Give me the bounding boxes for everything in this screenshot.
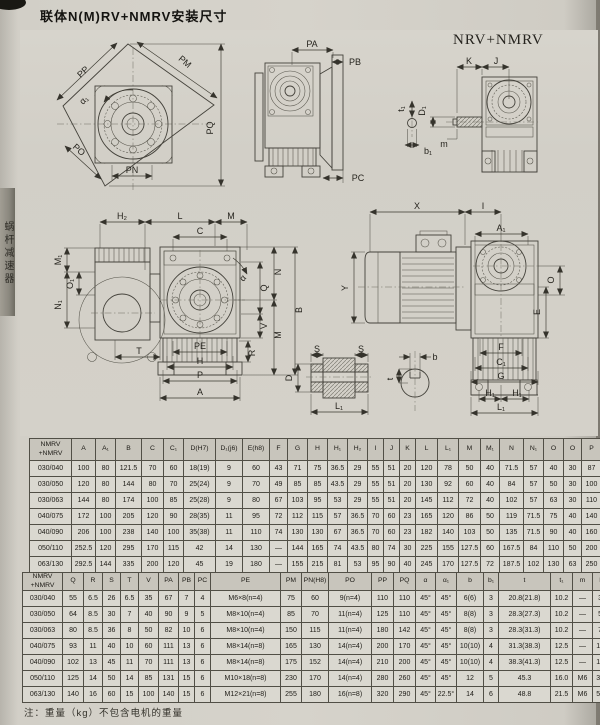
table-row: 040/0759311401060111136M8×14(n=8)1651301…	[23, 639, 600, 655]
column-header: PC	[195, 573, 211, 591]
value-cell: 80	[63, 623, 84, 639]
value-cell: 80	[142, 477, 164, 493]
value-cell: 14	[216, 541, 243, 557]
dim-label-pc: PC	[352, 173, 365, 183]
value-cell: 165	[281, 639, 302, 655]
value-cell: 8.5	[84, 607, 103, 623]
value-cell: 6	[195, 639, 211, 655]
value-cell: 25(24)	[184, 477, 216, 493]
row-label: 030/040	[30, 461, 72, 477]
input-flange-drawing: PP PM PQ PN PO α₁	[55, 40, 245, 195]
table-row: 040/09010213451170111136M8×14(n=8)175152…	[23, 655, 600, 671]
value-cell: 100	[139, 687, 159, 703]
value-cell: 206	[72, 525, 96, 541]
value-cell: 335	[116, 557, 142, 573]
column-header: R	[84, 573, 103, 591]
value-cell: 12.5	[551, 655, 573, 671]
value-cell: 85	[288, 477, 308, 493]
value-cell: 119	[500, 509, 524, 525]
value-cell: 120	[164, 557, 184, 573]
dim-label-a: A	[197, 387, 203, 397]
value-cell: 55	[368, 493, 384, 509]
value-cell: 155	[288, 557, 308, 573]
value-cell: 23	[400, 509, 416, 525]
value-cell: 6(6)	[457, 591, 484, 607]
value-cell: 112	[288, 509, 308, 525]
value-cell: 14	[457, 687, 484, 703]
value-cell: 13	[179, 639, 195, 655]
page-title: 联体N(M)RV+NMRV安装尺寸	[40, 6, 227, 25]
value-cell: 30	[564, 493, 582, 509]
value-cell: 43.5	[328, 477, 348, 493]
row-label: 050/110	[30, 541, 72, 557]
value-cell: 9	[216, 477, 243, 493]
value-cell: 16	[84, 687, 103, 703]
value-cell: 71	[288, 461, 308, 477]
value-cell: 121.5	[116, 461, 142, 477]
value-cell: 42	[184, 541, 216, 557]
value-cell: 15	[179, 687, 195, 703]
value-cell: 100	[96, 525, 116, 541]
value-cell: M8×14(n=8)	[211, 655, 281, 671]
value-cell: 205	[116, 509, 142, 525]
row-label: 030/050	[30, 477, 72, 493]
value-cell: 10.2	[551, 607, 573, 623]
value-cell: 4	[484, 639, 499, 655]
value-cell: 14(n=4)	[329, 671, 372, 687]
value-cell: 215	[308, 557, 328, 573]
dim-label-n1: N₁	[53, 300, 63, 310]
dim-label-h2: H₂	[117, 211, 127, 221]
value-cell: 85	[139, 671, 159, 687]
value-cell: 140	[63, 687, 84, 703]
dim-label-c1: C₁	[496, 357, 506, 367]
column-header: C	[142, 439, 164, 461]
value-cell: 102	[500, 493, 524, 509]
value-cell: 6.5	[84, 591, 103, 607]
value-cell: 120	[142, 509, 164, 525]
column-header: J	[384, 439, 400, 461]
dim-label-alpha: α	[237, 273, 248, 283]
value-cell: 180	[372, 623, 394, 639]
column-header: PA	[159, 573, 179, 591]
dim-label-l1-shaft: L₁	[335, 401, 343, 411]
column-header: K	[400, 439, 416, 461]
dim-label-l1: L₁	[497, 402, 505, 412]
value-cell: 115	[302, 623, 329, 639]
value-cell: 14	[84, 671, 103, 687]
value-cell: 45°	[416, 623, 436, 639]
value-cell: 60	[243, 461, 270, 477]
column-header: PE	[211, 573, 281, 591]
column-header: A₁	[96, 439, 116, 461]
value-cell: 10.2	[551, 591, 573, 607]
value-cell: 102	[524, 557, 544, 573]
value-cell: 40	[139, 607, 159, 623]
table-row: 050/110252.51202951701154214130—14416574…	[30, 541, 600, 557]
column-header: O	[544, 439, 564, 461]
value-cell: 200	[372, 639, 394, 655]
value-cell: 57	[328, 509, 348, 525]
row-label: 040/075	[30, 509, 72, 525]
table-row: 030/04010080121.5706018(19)96043717536.5…	[30, 461, 600, 477]
value-cell: 12.0	[593, 639, 600, 655]
value-cell: 43.5	[348, 541, 368, 557]
value-cell: 14(n=4)	[329, 639, 372, 655]
column-header: PN(H8)	[302, 573, 329, 591]
value-cell: 15	[179, 671, 195, 687]
column-header: H	[308, 439, 328, 461]
dim-label-r: R	[247, 349, 257, 356]
row-label: 063/130	[23, 687, 63, 703]
table-row: 030/05012080144807025(24)97049858543.529…	[30, 477, 600, 493]
value-cell: 6	[195, 671, 211, 687]
value-cell: 9(n=4)	[329, 591, 372, 607]
value-cell: 170	[142, 541, 164, 557]
value-cell: 70	[368, 509, 384, 525]
value-cell: 290	[394, 687, 416, 703]
dim-label-n: N	[273, 269, 283, 276]
table-row: 030/063808.53685082106M8×10(n=4)15011511…	[23, 623, 600, 639]
value-cell: 23	[400, 525, 416, 541]
value-cell: 14(n=4)	[329, 655, 372, 671]
value-cell: 57	[524, 461, 544, 477]
value-cell: 103	[288, 493, 308, 509]
value-cell: 125	[372, 607, 394, 623]
value-cell: 160	[582, 525, 600, 541]
table-row: 050/11012514501485131156M10×18(n=8)23017…	[23, 671, 600, 687]
value-cell: 78	[438, 461, 459, 477]
column-header: Q	[63, 573, 84, 591]
value-cell: 135	[500, 525, 524, 541]
value-cell: —	[573, 639, 593, 655]
value-cell: 260	[394, 671, 416, 687]
value-cell: 14	[121, 671, 139, 687]
motor-assembly-drawing: X I A₁	[340, 200, 598, 436]
value-cell: 110	[394, 591, 416, 607]
value-cell: —	[573, 623, 593, 639]
dim-label-h1-right: H₁	[512, 388, 522, 398]
dim-label-k: K	[466, 56, 472, 66]
value-cell: 7	[179, 591, 195, 607]
value-cell: 40	[481, 493, 500, 509]
value-cell: 49	[270, 477, 288, 493]
value-cell: 80	[96, 493, 116, 509]
value-cell: 67	[270, 493, 288, 509]
column-header: L	[416, 439, 438, 461]
column-header: α	[416, 573, 436, 591]
value-cell: 90	[159, 607, 179, 623]
column-header: D(H7)	[184, 439, 216, 461]
value-cell: 11(n=4)	[329, 607, 372, 623]
value-cell: 84	[500, 477, 524, 493]
column-header: NMRV +NMRV	[23, 573, 63, 591]
column-header: P	[582, 439, 600, 461]
value-cell: 7	[121, 607, 139, 623]
value-cell: 180	[302, 687, 329, 703]
dim-label-pp: PP	[75, 64, 91, 80]
value-cell: 152	[302, 655, 329, 671]
value-cell: 36.5	[328, 461, 348, 477]
value-cell: M6	[573, 687, 593, 703]
value-cell: 150	[281, 623, 302, 639]
value-cell: 50	[481, 525, 500, 541]
dim-label-p: P	[197, 370, 203, 380]
value-cell: 19	[216, 557, 243, 573]
row-label: 030/050	[23, 607, 63, 623]
value-cell: 145	[416, 493, 438, 509]
value-cell: 144	[116, 477, 142, 493]
value-cell: 40	[564, 509, 582, 525]
value-cell: 100	[72, 461, 96, 477]
table-row: 040/09020610023814010035(38)111107413013…	[30, 525, 600, 541]
value-cell: 127.5	[459, 541, 481, 557]
column-header: H₁	[328, 439, 348, 461]
value-cell: 48.8	[499, 687, 551, 703]
value-cell: 4	[484, 655, 499, 671]
dim-label-f: F	[498, 342, 504, 352]
value-cell: 90	[384, 557, 400, 573]
dim-label-pn: PN	[126, 165, 139, 175]
value-cell: 71.5	[500, 461, 524, 477]
value-cell: 80	[243, 493, 270, 509]
value-cell: 30	[400, 541, 416, 557]
value-cell: 16(n=8)	[329, 687, 372, 703]
column-header: PM	[281, 573, 302, 591]
value-cell: 50	[481, 509, 500, 525]
value-cell: 35(38)	[184, 525, 216, 541]
column-header: N₁	[524, 439, 544, 461]
dim-label-e: E	[532, 309, 542, 315]
value-cell: 72	[270, 509, 288, 525]
value-cell: 67	[328, 525, 348, 541]
value-cell: 130	[288, 525, 308, 541]
dim-label-y: Y	[340, 285, 350, 291]
value-cell: 30	[564, 461, 582, 477]
value-cell: 238	[116, 525, 142, 541]
dim-label-pm: PM	[177, 54, 194, 70]
value-cell: 74	[328, 541, 348, 557]
value-cell: 30	[564, 477, 582, 493]
scan-smudge	[0, 0, 26, 10]
value-cell: 20.8(21.8)	[499, 591, 551, 607]
value-cell: 180	[243, 557, 270, 573]
value-cell: 170	[302, 671, 329, 687]
value-cell: 320	[372, 687, 394, 703]
value-cell: 81	[328, 557, 348, 573]
dim-label-a1: A₁	[496, 223, 505, 233]
value-cell: 13	[179, 655, 195, 671]
value-cell: 142	[394, 623, 416, 639]
value-cell: 86	[459, 509, 481, 525]
value-cell: 16.0	[593, 655, 600, 671]
row-label: 040/090	[23, 655, 63, 671]
dim-label-o1: O₁	[65, 279, 75, 289]
gearbox-side-drawing: PA PB PC	[255, 40, 385, 190]
value-cell: 45°	[436, 639, 457, 655]
value-cell: 12.5	[551, 639, 573, 655]
value-cell: 103	[459, 525, 481, 541]
value-cell: 45°	[436, 607, 457, 623]
column-header: H₂	[348, 439, 368, 461]
column-header: D₁(j6)	[216, 439, 243, 461]
value-cell: 6.5	[121, 591, 139, 607]
value-cell: 70	[142, 461, 164, 477]
header-row: NMRV +NMRVAA₁BCC₁D(H7)D₁(j6)E(h8)FGHH₁H₂…	[30, 439, 600, 461]
dim-label-i: I	[482, 201, 485, 211]
column-header: F	[270, 439, 288, 461]
column-header: M	[459, 439, 481, 461]
value-cell: 50	[139, 623, 159, 639]
value-cell: 3	[484, 623, 499, 639]
value-cell: 70	[243, 477, 270, 493]
keyway-section-drawing: b t	[390, 345, 452, 415]
chapter-side-tab: 蜗杆减速器	[0, 188, 15, 316]
dim-label-l: L	[177, 211, 182, 221]
column-header: b	[457, 573, 484, 591]
value-cell: 25(28)	[184, 493, 216, 509]
row-label: 030/040	[23, 591, 63, 607]
value-cell: 252.5	[72, 541, 96, 557]
value-cell: 5.0	[593, 607, 600, 623]
value-cell: 144	[96, 557, 116, 573]
value-cell: 72	[481, 557, 500, 573]
value-cell: 51	[384, 477, 400, 493]
value-cell: 95	[368, 557, 384, 573]
dim-label-d1: D₁	[417, 106, 427, 116]
row-label: 040/075	[23, 639, 63, 655]
value-cell: 3	[484, 591, 499, 607]
column-header: PB	[179, 573, 195, 591]
value-cell: 167.5	[500, 541, 524, 557]
value-cell: 70	[139, 655, 159, 671]
value-cell: 70	[164, 477, 184, 493]
value-cell: 210	[372, 655, 394, 671]
column-header: E(h8)	[243, 439, 270, 461]
value-cell: —	[573, 655, 593, 671]
value-cell: 127.5	[459, 557, 481, 573]
value-cell: 45°	[416, 671, 436, 687]
input-shaft-drawing: K J D₁	[400, 55, 565, 205]
value-cell: 170	[394, 639, 416, 655]
value-cell: 11	[84, 639, 103, 655]
value-cell: 111	[159, 639, 179, 655]
value-cell: 63	[544, 493, 564, 509]
value-cell: 75	[308, 461, 328, 477]
value-cell: 10	[179, 623, 195, 639]
value-cell: 11	[216, 525, 243, 541]
column-header: C₁	[164, 439, 184, 461]
value-cell: 200	[142, 557, 164, 573]
value-cell: 85	[281, 607, 302, 623]
value-cell: 245	[416, 557, 438, 573]
header-row: NMRV +NMRVQRSTVPAPBPCPEPMPN(H8)POPPPQαα₁…	[23, 573, 600, 591]
value-cell: 55	[63, 591, 84, 607]
value-cell: 120	[96, 541, 116, 557]
dim-label-pa: PA	[306, 39, 317, 49]
value-cell: 60	[164, 461, 184, 477]
value-cell: 31.3(38.3)	[499, 639, 551, 655]
value-cell: M12×21(n=8)	[211, 687, 281, 703]
value-cell: 6	[195, 655, 211, 671]
value-cell: 3	[484, 607, 499, 623]
value-cell: 280	[372, 671, 394, 687]
dim-label-key-b: b	[432, 352, 437, 362]
value-cell: 100	[142, 493, 164, 509]
column-header: NMRV +NMRV	[30, 439, 72, 461]
column-header: O	[564, 439, 582, 461]
value-cell: 120	[416, 461, 438, 477]
value-cell: 82	[159, 623, 179, 639]
value-cell: 26	[103, 591, 121, 607]
value-cell: 71.5	[524, 509, 544, 525]
value-cell: 60	[103, 687, 121, 703]
dim-label-x: X	[414, 201, 420, 211]
value-cell: 45°	[436, 591, 457, 607]
value-cell: 45°	[416, 591, 436, 607]
value-cell: 40	[564, 525, 582, 541]
value-cell: 131	[159, 671, 179, 687]
column-header: t₁	[551, 573, 573, 591]
value-cell: 16.0	[551, 671, 573, 687]
value-cell: 5	[195, 607, 211, 623]
table-row: 063/130140166015100140156M12×21(n=8)2551…	[23, 687, 600, 703]
value-cell: 125	[63, 671, 84, 687]
value-cell: 110	[243, 525, 270, 541]
value-cell: 45°	[436, 671, 457, 687]
value-cell: 70	[302, 607, 329, 623]
dim-label-m1: M₁	[53, 255, 63, 266]
value-cell: 187.5	[500, 557, 524, 573]
dim-label-o: O	[546, 276, 556, 283]
value-cell: 130	[544, 557, 564, 573]
value-cell: 45	[184, 557, 216, 573]
value-cell: 55	[368, 477, 384, 493]
value-cell: 10	[121, 639, 139, 655]
table-row: 030/050648.5307409095M8×10(n=4)857011(n=…	[23, 607, 600, 623]
value-cell: 60	[481, 541, 500, 557]
value-cell: 51	[384, 461, 400, 477]
value-cell: 21.5	[551, 687, 573, 703]
table-row: 030/040556.5266.5356774M6×8(n=4)75609(n=…	[23, 591, 600, 607]
dimension-table-mounting: NMRV +NMRVQRSTVPAPBPCPEPMPN(H8)POPPPQαα₁…	[22, 572, 600, 703]
value-cell: 40	[400, 557, 416, 573]
value-cell: —	[270, 557, 288, 573]
dim-label-s-left: S	[314, 344, 320, 354]
value-cell: 100	[582, 477, 600, 493]
dim-label-q: Q	[259, 284, 269, 291]
row-label: 050/110	[23, 671, 63, 687]
value-cell: 6	[195, 623, 211, 639]
dim-label-t1: t₁	[396, 106, 406, 112]
value-cell: 140	[159, 687, 179, 703]
value-cell: 144	[288, 541, 308, 557]
value-cell: 53	[348, 557, 368, 573]
value-cell: 84	[524, 541, 544, 557]
value-cell: 165	[416, 509, 438, 525]
value-cell: 140	[582, 509, 600, 525]
value-cell: 60	[384, 509, 400, 525]
value-cell: 110	[394, 607, 416, 623]
value-cell: 36	[103, 623, 121, 639]
value-cell: 80	[96, 477, 116, 493]
column-header: PP	[372, 573, 394, 591]
value-cell: 10(10)	[457, 655, 484, 671]
dim-label-c: C	[197, 226, 204, 236]
value-cell: 100	[164, 525, 184, 541]
value-cell: 7.8	[593, 623, 600, 639]
value-cell: 60	[302, 591, 329, 607]
